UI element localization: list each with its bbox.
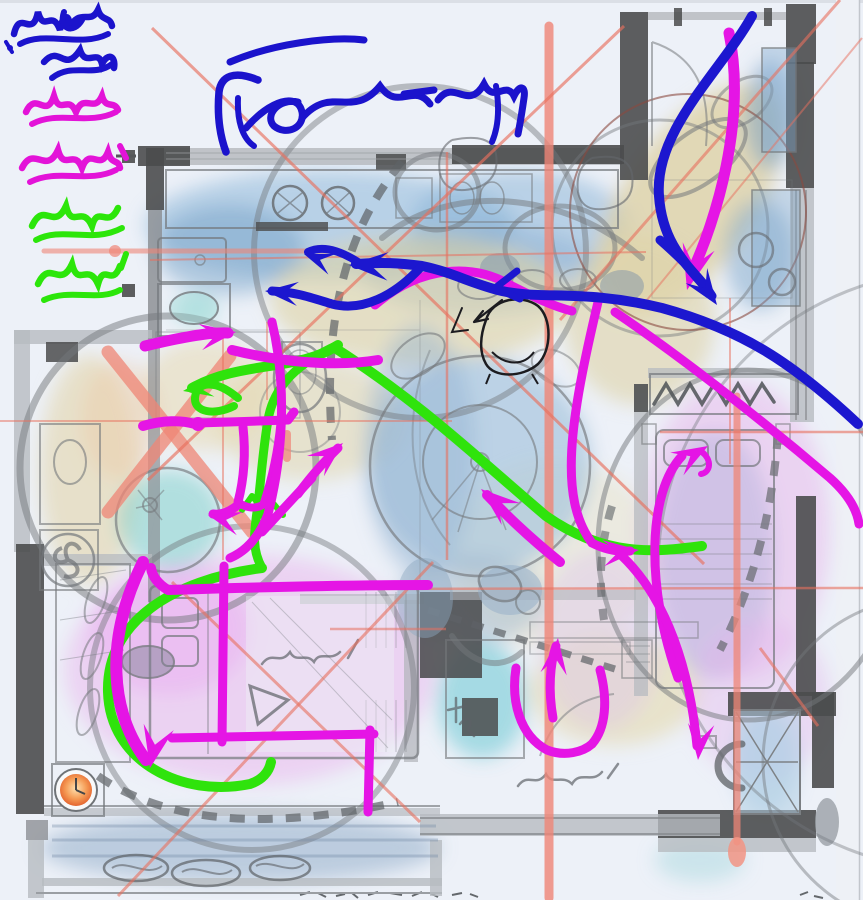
floorplan-svg <box>0 0 863 900</box>
living-bath-divider <box>450 590 636 600</box>
title-dash <box>404 90 434 94</box>
magenta-bed-line1 <box>172 734 374 738</box>
red-dot <box>109 245 121 257</box>
magenta-bar-tail <box>143 421 195 426</box>
magenta-bed-line3 <box>368 730 370 812</box>
entry-panel1 <box>762 48 796 152</box>
kitchen-left-wall-dark <box>146 148 164 210</box>
balcony-right-wall <box>430 840 442 896</box>
balcony-left-wall <box>28 840 44 898</box>
prep-sink <box>170 292 218 324</box>
top-edge <box>0 0 863 3</box>
magenta-bed-line2 <box>222 566 224 742</box>
left-step <box>26 820 48 840</box>
right-wall-lower <box>796 496 816 696</box>
entry-left-wall <box>620 12 648 180</box>
entry-post1 <box>674 8 682 26</box>
annotated-floorplan-image <box>0 0 863 900</box>
wall-tick2 <box>122 284 135 297</box>
top-wall-dark3 <box>452 145 624 164</box>
entry-post2 <box>764 8 772 26</box>
balcony-bottom-wall <box>42 878 442 886</box>
red-teardrop <box>728 837 746 867</box>
br-right-wall <box>812 692 834 788</box>
counter-dark-strip <box>256 222 328 231</box>
bed2-left-wall-dark <box>634 384 648 412</box>
right-margin <box>836 0 860 900</box>
